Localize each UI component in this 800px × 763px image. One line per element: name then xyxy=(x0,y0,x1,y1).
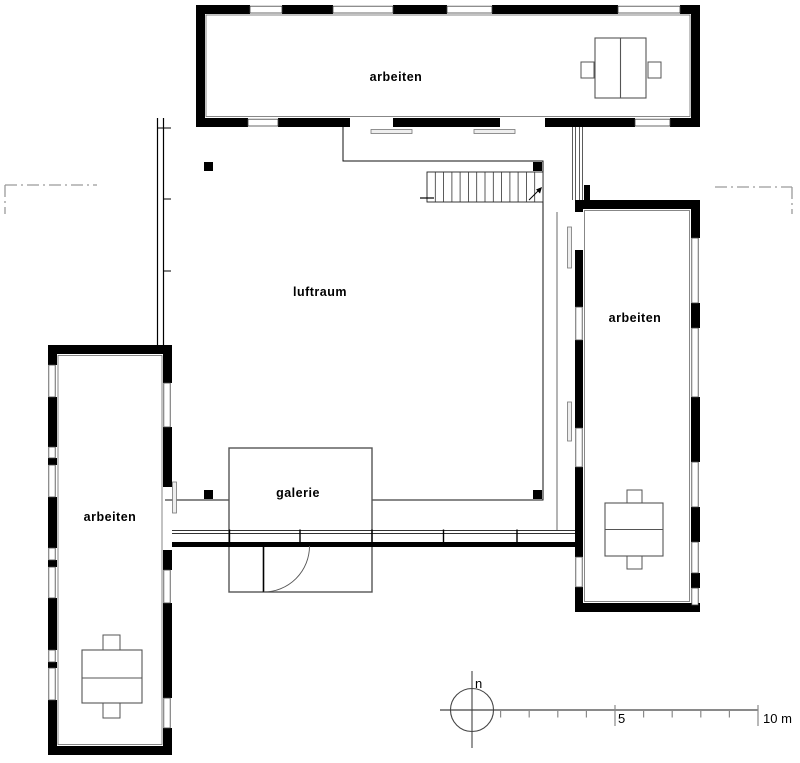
wall-top xyxy=(48,345,172,354)
gallery-outline xyxy=(229,448,372,592)
left-wing: arbeiten xyxy=(48,345,177,755)
section-line-right xyxy=(715,187,792,214)
desk-group-left-wing xyxy=(82,635,142,718)
wall-left xyxy=(196,5,205,127)
window xyxy=(576,557,582,587)
sliding-door-panel xyxy=(474,130,515,134)
window xyxy=(164,698,170,728)
sliding-door-panel xyxy=(173,482,177,513)
scale-mid-label: 5 xyxy=(618,711,625,726)
chair xyxy=(627,490,642,503)
chair xyxy=(103,703,120,718)
chair xyxy=(627,556,642,569)
north-label: n xyxy=(475,676,482,691)
corridor-wall-stub xyxy=(584,185,590,201)
desk xyxy=(82,650,142,703)
chair xyxy=(103,635,120,650)
wall-right xyxy=(691,5,700,127)
window xyxy=(49,365,55,397)
gallery-label: galerie xyxy=(276,486,320,500)
column xyxy=(533,162,542,171)
sliding-door-panel xyxy=(371,130,412,134)
column xyxy=(204,162,213,171)
stairs xyxy=(420,172,543,202)
left-wing-label: arbeiten xyxy=(84,510,137,524)
window xyxy=(618,6,680,13)
scale-bar: 5 10 m xyxy=(501,705,792,726)
window xyxy=(164,383,170,427)
wall-bottom xyxy=(48,746,172,755)
desk-group-right-wing xyxy=(605,490,663,569)
window xyxy=(248,119,278,126)
wall-top xyxy=(575,200,700,209)
scale-end-label: 10 m xyxy=(763,711,792,726)
floor-plan-drawing: luftraum arbeiten xyxy=(0,0,800,763)
top-wing-label: arbeiten xyxy=(370,70,423,84)
floor-plan-page: luftraum arbeiten xyxy=(0,0,800,763)
sliding-door-panel xyxy=(568,227,572,268)
gallery: galerie xyxy=(229,448,372,592)
partition-wall-ticks xyxy=(158,128,172,271)
corridor-right xyxy=(573,127,591,201)
window xyxy=(164,570,170,603)
desk-group-top-wing xyxy=(581,38,661,98)
window xyxy=(333,6,393,13)
window xyxy=(49,567,55,598)
window xyxy=(692,462,698,507)
void-label: luftraum xyxy=(293,285,347,299)
right-wing: arbeiten xyxy=(568,200,701,612)
chair xyxy=(648,62,661,78)
sliding-door-panel xyxy=(568,402,572,441)
window xyxy=(576,307,582,340)
wall-left xyxy=(575,200,583,612)
window xyxy=(49,447,55,458)
window xyxy=(447,6,492,13)
window xyxy=(635,119,670,126)
left-partition-wall xyxy=(158,118,164,346)
window xyxy=(49,650,55,662)
window xyxy=(692,238,698,303)
section-line-left xyxy=(5,185,97,214)
window xyxy=(576,428,582,467)
window xyxy=(692,328,698,397)
window xyxy=(692,542,698,573)
top-wing: arbeiten xyxy=(196,5,700,134)
chair xyxy=(581,62,594,78)
window xyxy=(49,465,55,497)
scale-ticks-major xyxy=(615,705,758,726)
column xyxy=(533,490,542,499)
window xyxy=(49,668,55,700)
bridge-wall xyxy=(172,542,575,547)
north-indicator: n xyxy=(440,671,758,748)
column xyxy=(204,490,213,499)
window xyxy=(692,588,698,605)
right-wing-label: arbeiten xyxy=(609,311,662,325)
corridor-walls xyxy=(573,127,583,200)
window xyxy=(49,548,55,560)
wall-bottom xyxy=(575,603,700,612)
window xyxy=(250,6,282,13)
